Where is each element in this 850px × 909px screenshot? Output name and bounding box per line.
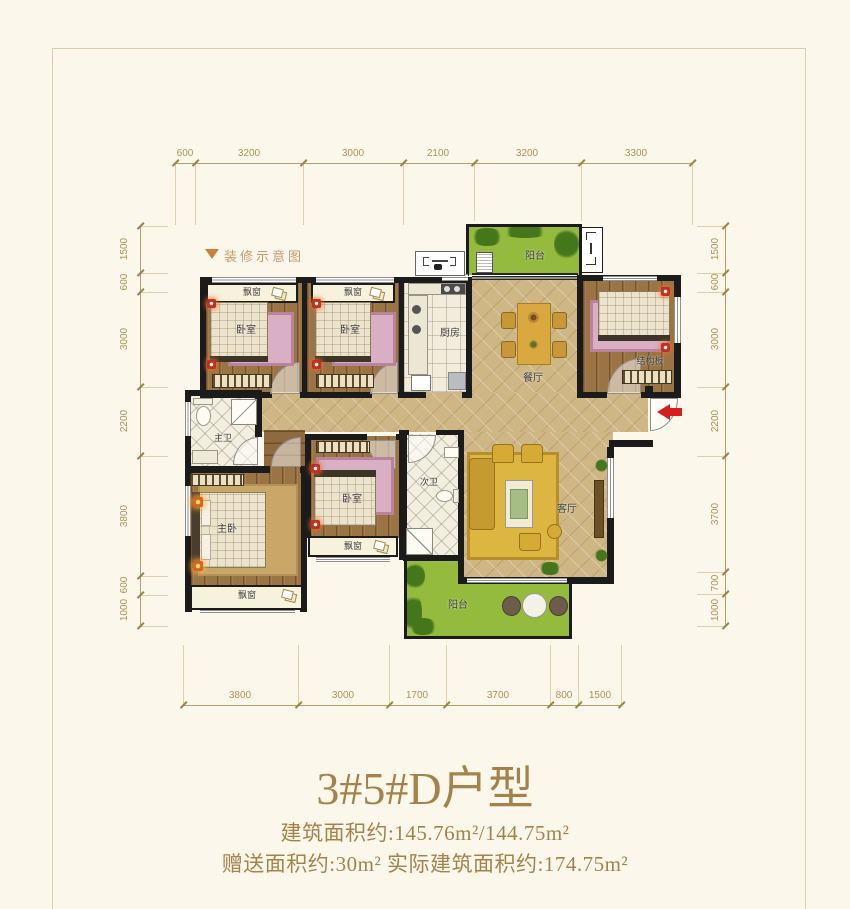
bay-window-label: 飘窗 bbox=[323, 541, 383, 552]
wall bbox=[185, 466, 270, 473]
extension-line bbox=[446, 645, 447, 705]
wall bbox=[301, 466, 307, 590]
sink-icon bbox=[412, 305, 421, 314]
dim-label: 2200 bbox=[119, 401, 133, 441]
dim-label: 1000 bbox=[710, 590, 724, 630]
dim-label: 2100 bbox=[408, 148, 468, 159]
extension-line bbox=[140, 626, 168, 627]
plan-symbol bbox=[450, 257, 456, 266]
dim-label: 3700 bbox=[480, 690, 516, 701]
burner-icon bbox=[444, 286, 450, 292]
wall bbox=[396, 434, 404, 440]
wall bbox=[403, 555, 463, 561]
window bbox=[316, 557, 390, 562]
light-icon bbox=[207, 299, 216, 308]
wall bbox=[302, 283, 307, 393]
extension-line bbox=[195, 163, 196, 225]
plant-icon bbox=[470, 228, 504, 246]
table-icon bbox=[522, 593, 547, 618]
dim-label: 600 bbox=[119, 262, 133, 302]
dim-label: 1000 bbox=[119, 590, 133, 630]
dimension-line-bottom bbox=[183, 705, 621, 706]
extension-line bbox=[697, 456, 725, 457]
bed-foot bbox=[598, 335, 670, 341]
toilet-icon bbox=[196, 406, 211, 426]
window bbox=[607, 458, 614, 518]
dim-label: 800 bbox=[546, 690, 582, 701]
window bbox=[467, 578, 567, 583]
bay-window-label: 飘窗 bbox=[222, 287, 282, 298]
plant-icon bbox=[595, 459, 608, 472]
plan-symbol bbox=[432, 260, 448, 262]
light-icon bbox=[207, 360, 216, 369]
dim-label: 3200 bbox=[219, 148, 279, 159]
chair-icon bbox=[501, 341, 516, 358]
wall bbox=[398, 392, 426, 398]
centerpiece-icon bbox=[529, 340, 538, 349]
plan-symbol bbox=[586, 232, 596, 240]
room-label-structural-slab: 结构板 bbox=[628, 356, 672, 367]
room-label-living: 客厅 bbox=[547, 504, 587, 516]
sliding-door bbox=[472, 273, 578, 280]
wardrobe bbox=[622, 370, 672, 384]
dim-label: 3200 bbox=[497, 148, 557, 159]
wall bbox=[466, 224, 582, 227]
bed-head bbox=[314, 470, 376, 477]
plan-symbol bbox=[590, 243, 592, 254]
plan-symbol bbox=[423, 257, 429, 266]
chair-icon bbox=[552, 341, 567, 358]
extension-line bbox=[140, 595, 168, 596]
fridge-icon bbox=[448, 372, 466, 390]
light-icon bbox=[661, 287, 670, 296]
area-line-1: 建筑面积约:145.76m²/144.75m² bbox=[0, 817, 850, 847]
plant-icon bbox=[405, 562, 425, 590]
plant-icon bbox=[538, 562, 562, 575]
wardrobe bbox=[316, 441, 370, 453]
wall bbox=[404, 558, 407, 638]
extension-line bbox=[403, 163, 404, 225]
extension-line bbox=[140, 273, 168, 274]
wall bbox=[569, 582, 572, 639]
dim-label: 3700 bbox=[710, 494, 724, 534]
table-glass bbox=[510, 489, 528, 519]
room-label-dining: 餐厅 bbox=[513, 373, 553, 385]
floorplan-flyer: 装修示意图 bbox=[0, 0, 850, 902]
plant-icon bbox=[554, 228, 579, 260]
wall bbox=[300, 392, 372, 398]
ac-unit-icon bbox=[476, 252, 493, 273]
extension-line bbox=[183, 645, 184, 705]
pouf-icon bbox=[547, 524, 562, 539]
wall bbox=[577, 392, 607, 398]
sink-icon bbox=[412, 325, 421, 334]
dim-label: 600 bbox=[155, 148, 215, 159]
sofa-icon bbox=[469, 458, 495, 530]
window bbox=[603, 276, 657, 281]
dim-label: 3000 bbox=[710, 319, 724, 359]
wall bbox=[399, 283, 404, 393]
dimension-line-left bbox=[140, 226, 141, 626]
extension-line bbox=[303, 163, 304, 225]
extension-line bbox=[621, 645, 622, 705]
dimension-line-right bbox=[725, 226, 726, 626]
extension-line bbox=[140, 226, 168, 227]
wardrobe bbox=[190, 474, 244, 486]
extension-line bbox=[175, 163, 176, 225]
burner-icon bbox=[454, 286, 460, 292]
entry-arrow-tail bbox=[669, 408, 682, 416]
pillow bbox=[201, 534, 211, 560]
wall bbox=[462, 392, 472, 398]
chair-icon bbox=[501, 312, 516, 329]
room-label-kitchen: 厨房 bbox=[432, 328, 468, 340]
room-label-master-bedroom: 主卧 bbox=[207, 524, 247, 536]
light-icon bbox=[312, 360, 321, 369]
light-icon bbox=[311, 464, 320, 473]
centerpiece-icon bbox=[528, 312, 539, 323]
dim-label: 3000 bbox=[323, 148, 383, 159]
bed-foot bbox=[210, 356, 268, 362]
tv-console bbox=[594, 480, 604, 538]
toilet-icon bbox=[436, 490, 453, 502]
plan-symbol bbox=[586, 257, 596, 265]
extension-line bbox=[697, 226, 725, 227]
chair-icon bbox=[552, 312, 567, 329]
chair-icon bbox=[549, 596, 568, 616]
shower-icon bbox=[406, 528, 433, 555]
light-icon bbox=[193, 561, 203, 571]
chair-icon bbox=[502, 596, 521, 616]
window bbox=[674, 297, 681, 343]
room-label-bedroom1: 卧室 bbox=[226, 325, 266, 337]
room-label-bedroom4: 卧室 bbox=[332, 494, 372, 506]
room-label-balcony-bottom: 阳台 bbox=[440, 600, 476, 612]
plan-symbol bbox=[434, 264, 442, 270]
dim-label: 3300 bbox=[606, 148, 666, 159]
window bbox=[185, 486, 191, 536]
wall bbox=[577, 281, 583, 392]
dim-label: 3800 bbox=[222, 690, 258, 701]
armchair-icon bbox=[521, 444, 543, 463]
dim-label: 2200 bbox=[710, 401, 724, 441]
extension-line bbox=[581, 163, 582, 221]
wall bbox=[305, 434, 367, 440]
bed bbox=[598, 291, 670, 339]
extension-line bbox=[298, 645, 299, 705]
light-icon bbox=[661, 343, 670, 352]
dim-label: 1700 bbox=[399, 690, 435, 701]
toilet-tank bbox=[453, 489, 459, 503]
plant-icon bbox=[408, 618, 438, 635]
plant-icon bbox=[595, 549, 608, 562]
wall bbox=[609, 440, 653, 447]
light-icon bbox=[311, 520, 320, 529]
wall bbox=[185, 390, 261, 396]
light-icon bbox=[312, 299, 321, 308]
bay-window-label: 飘窗 bbox=[217, 590, 277, 601]
dim-label: 600 bbox=[710, 262, 724, 302]
room-label-master-bath: 主卫 bbox=[205, 433, 241, 444]
room-label-second-bath: 次卫 bbox=[411, 477, 447, 488]
extension-line bbox=[697, 387, 725, 388]
shower-icon bbox=[231, 399, 257, 425]
armchair-icon bbox=[492, 444, 514, 463]
hallway-floor bbox=[258, 392, 648, 432]
extension-line bbox=[140, 387, 168, 388]
wall bbox=[466, 224, 469, 276]
light-icon bbox=[193, 497, 203, 507]
dim-label: 1500 bbox=[582, 690, 618, 701]
dimension-line-top bbox=[175, 163, 692, 164]
decoration-note: 装修示意图 bbox=[224, 246, 304, 265]
toilet-tank bbox=[193, 398, 213, 405]
wardrobe bbox=[316, 374, 374, 388]
sink-icon bbox=[444, 447, 459, 458]
armchair-icon bbox=[519, 533, 541, 551]
dim-label: 3000 bbox=[119, 319, 133, 359]
triangle-down-icon bbox=[205, 249, 219, 259]
extension-line bbox=[140, 576, 168, 577]
bed-foot bbox=[315, 356, 371, 362]
vanity-icon bbox=[192, 450, 218, 464]
extension-line bbox=[692, 163, 693, 225]
extension-line bbox=[389, 645, 390, 705]
extension-line bbox=[140, 292, 168, 293]
room-label-bedroom2: 卧室 bbox=[330, 325, 370, 337]
extension-line bbox=[474, 163, 475, 221]
wardrobe bbox=[212, 374, 272, 388]
dim-label: 3000 bbox=[325, 690, 361, 701]
wall bbox=[645, 386, 653, 398]
window bbox=[185, 402, 191, 436]
kitchen-door bbox=[411, 375, 431, 391]
room-label-balcony-top: 阳台 bbox=[517, 251, 553, 263]
dim-label: 3800 bbox=[119, 496, 133, 536]
extension-line bbox=[140, 456, 168, 457]
bay-window-label: 飘窗 bbox=[323, 287, 383, 298]
unit-title: 3#5#D户型 bbox=[0, 752, 850, 818]
area-line-2: 赠送面积约:30m² 实际建筑面积约:174.75m² bbox=[0, 848, 850, 878]
wall bbox=[404, 636, 572, 639]
